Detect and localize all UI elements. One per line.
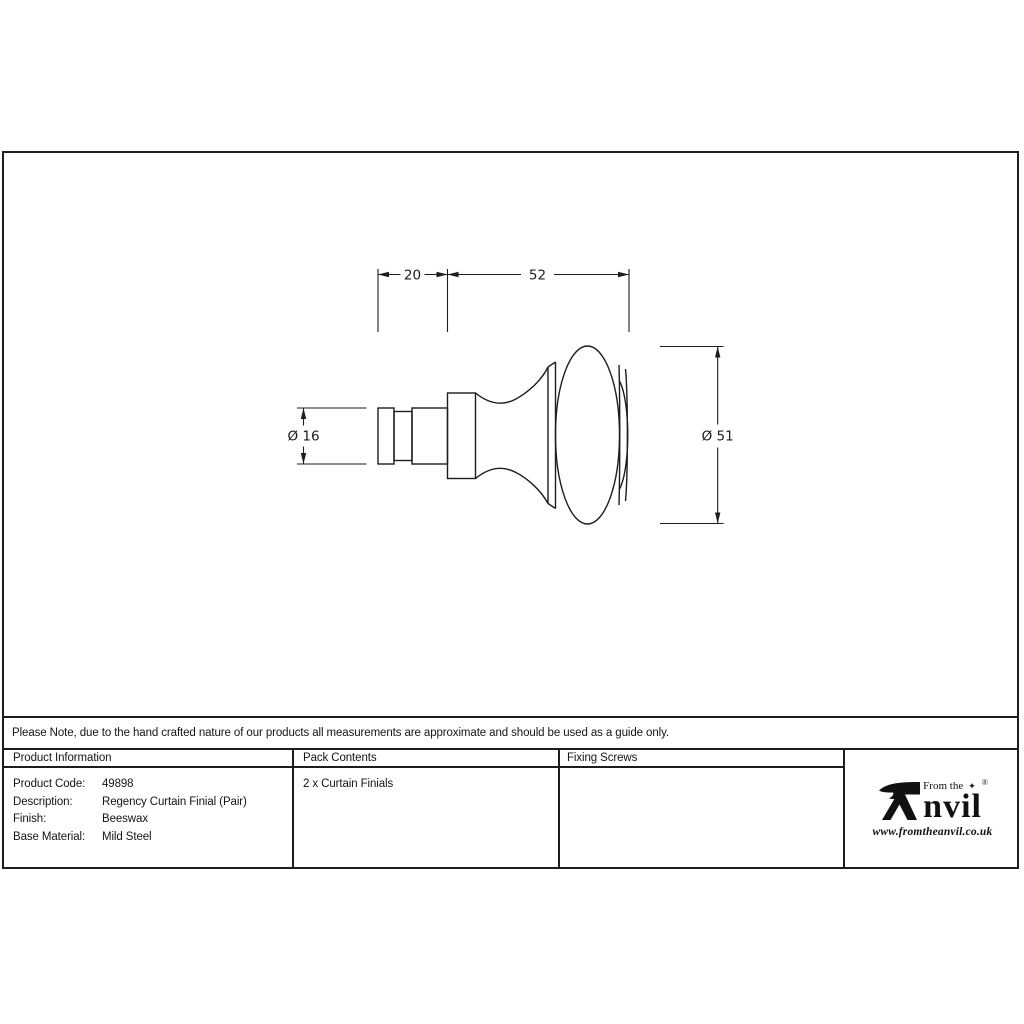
finial-outline — [378, 346, 628, 524]
dimension-stem-diameter: Ø 16 — [287, 408, 366, 464]
arrow-right-icon — [618, 272, 629, 277]
product-code-label: Product Code: — [13, 777, 85, 791]
header-product-information: Product Information — [13, 751, 111, 765]
description-label: Description: — [13, 795, 73, 809]
note-text: Please Note, due to the hand crafted nat… — [12, 726, 669, 740]
finial-collar-ring — [548, 362, 556, 509]
finial-face-ring-outer — [619, 365, 620, 505]
header-pack-contents: Pack Contents — [303, 751, 377, 765]
base-material-label: Base Material: — [13, 830, 85, 844]
finial-flange — [448, 393, 476, 479]
arrow-right-icon — [437, 272, 448, 277]
dimension-knob-diameter: Ø 51 — [660, 347, 734, 524]
description-value: Regency Curtain Finial (Pair) — [102, 795, 247, 809]
arrow-down-icon — [301, 453, 306, 464]
table-divider-3 — [843, 748, 845, 869]
finial-stem-groove — [394, 412, 412, 461]
logo-main: From the ✦ ® nvil — [877, 780, 988, 820]
base-material-value: Mild Steel — [102, 830, 152, 844]
table-divider-2 — [558, 748, 560, 869]
logo-wordmark: nvil — [923, 793, 988, 820]
finish-label: Finish: — [13, 812, 46, 826]
registered-mark-icon: ® — [982, 778, 988, 787]
arrow-left-icon — [448, 272, 459, 277]
note-row-top-border — [3, 716, 1019, 718]
header-row-bottom-border — [3, 766, 844, 768]
technical-drawing: 20 52 Ø 16 Ø 51 — [270, 255, 750, 545]
finial-stem — [412, 408, 448, 464]
table-divider-1 — [292, 748, 294, 869]
header-fixing-screws: Fixing Screws — [567, 751, 637, 765]
product-code-value: 49898 — [102, 777, 133, 791]
arrow-left-icon — [378, 272, 389, 277]
dim-label-stem-diameter: Ø 16 — [287, 429, 319, 445]
dim-label-knob-diameter: Ø 51 — [702, 429, 734, 445]
spec-sheet-page: 20 52 Ø 16 Ø 51 Please Note, due to the … — [0, 0, 1024, 1024]
finish-value: Beeswax — [102, 812, 148, 826]
arrow-down-icon — [715, 513, 720, 524]
logo-website: www.fromtheanvil.co.uk — [873, 826, 993, 838]
anvil-icon — [877, 781, 921, 821]
table-top-border — [3, 748, 1019, 750]
finial-neck-top — [476, 367, 549, 403]
dim-label-stem-length: 20 — [404, 268, 421, 284]
finial-knob — [556, 346, 620, 524]
arrow-up-icon — [715, 347, 720, 358]
dimension-top: 20 52 — [378, 268, 629, 333]
pack-contents-value: 2 x Curtain Finials — [303, 777, 393, 791]
finial-end-cap — [378, 408, 394, 464]
arrow-up-icon — [301, 408, 306, 419]
logo-text-block: From the ✦ ® nvil — [923, 780, 988, 820]
brand-logo: From the ✦ ® nvil www.fromtheanvil.co.uk — [846, 752, 1019, 866]
finial-neck-bottom — [476, 468, 549, 503]
dim-label-knob-length: 52 — [529, 268, 546, 284]
